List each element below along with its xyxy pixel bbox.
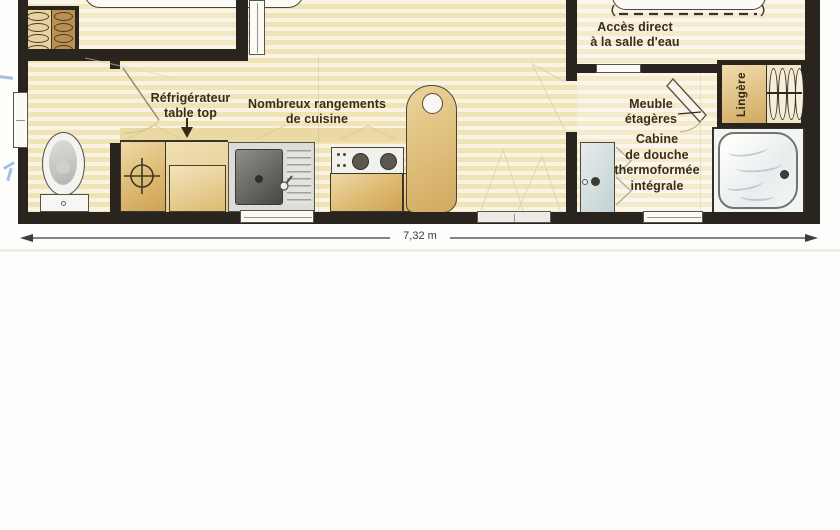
window-frame-line (16, 120, 25, 121)
hob-knob-icon (343, 153, 346, 156)
sink-unit (228, 142, 315, 212)
hob-knob-icon (343, 164, 346, 167)
washbasin-faucet-icon (582, 179, 588, 185)
burner-icon (352, 153, 369, 170)
shower-cabin-label-line1: Cabine (594, 132, 720, 148)
linen-closet-label: Lingère (720, 66, 764, 122)
shelf-unit-label: Meuble étagères (601, 97, 701, 127)
sliding-door-bathroom-access (596, 64, 641, 73)
shower-drain (780, 170, 789, 179)
toilet-bowl (42, 132, 85, 196)
wardrobe-shelf-column-right (51, 10, 75, 49)
hanging-clothes-icon (795, 68, 804, 120)
linen-stack-icon (54, 23, 73, 32)
refrigerator-label-line1: Réfrigérateur (118, 91, 263, 106)
door-panel-line (257, 3, 258, 53)
entrance-door (477, 211, 551, 223)
cabinet-under-hob (330, 173, 403, 212)
peninsula-counter (406, 85, 457, 213)
sink-basin (235, 149, 283, 205)
wall-bathroom-left-lower (566, 132, 577, 212)
shower-cabin-label-line4: intégrale (594, 179, 720, 195)
burner-icon (380, 153, 397, 170)
shower-cabin-label: Cabine de douche thermoformée intégrale (594, 132, 720, 194)
linen-closet-rail (767, 92, 802, 94)
peninsula-circle (422, 93, 443, 114)
linen-stack-icon (27, 23, 49, 32)
dimension-label: 7,32 m (392, 230, 448, 242)
shower-cabin-label-line3: thermoformée (594, 163, 720, 179)
toilet-drain (56, 160, 70, 174)
toilet-cistern (40, 194, 89, 212)
window-kitchen (240, 210, 314, 223)
window-frame-line (244, 217, 312, 218)
hanging-clothes-icon (778, 68, 787, 120)
bed-2 (612, 0, 766, 10)
kitchen-storage-label-line1: Nombreux rangements (246, 97, 388, 112)
refrigerator-label-line2: table top (118, 106, 263, 121)
wall-right (805, 0, 820, 224)
drainboard (287, 150, 311, 204)
bathroom-access-label: Accès direct à la salle d'eau (563, 20, 707, 50)
pen-mark (6, 168, 12, 181)
shelf-unit-label-line1: Meuble (601, 97, 701, 112)
wall-bedroom2-bathroom-right (641, 64, 719, 73)
hob-knob-icon (337, 153, 340, 156)
water-wave-icon (727, 141, 768, 158)
fridge-box (169, 165, 226, 212)
shower-tray (718, 132, 798, 209)
gas-cabinet (120, 140, 166, 212)
shower-cabin-label-line2: de douche (594, 148, 720, 164)
linen-stack-icon (54, 12, 73, 21)
wall-bedroom2-bathroom-left (577, 64, 597, 73)
water-wave-icon (740, 191, 774, 201)
toilet-button (61, 201, 66, 206)
door-panel-line (514, 214, 515, 222)
floorplan-page: Réfrigérateur table top Nombreux rangeme… (0, 0, 840, 530)
refrigerator-label: Réfrigérateur table top (118, 91, 263, 121)
window-wc (13, 92, 28, 148)
kitchen-storage-label: Nombreux rangements de cuisine (246, 97, 388, 127)
floor-seam (318, 55, 319, 212)
wall-bedroom1-right (236, 0, 248, 53)
dimension-arrow-right (805, 234, 818, 242)
hob (331, 147, 404, 174)
scan-shadow-band (0, 249, 840, 252)
dimension-arrow-left (20, 234, 33, 242)
window-bathroom (643, 211, 703, 223)
hob-knob-icon (337, 164, 340, 167)
pen-mark (0, 75, 13, 80)
bed-1 (84, 0, 304, 8)
linen-stack-icon (27, 12, 49, 21)
wall-wc-right-lower (110, 143, 120, 212)
wall-bedroom1-bottom (22, 49, 248, 61)
kitchen-storage-label-line2: de cuisine (246, 112, 388, 127)
linen-stack-icon (54, 34, 73, 43)
water-wave-icon (736, 158, 783, 174)
bathroom-access-label-line1: Accès direct (563, 20, 707, 35)
wall-wc-right-upper (110, 55, 120, 69)
wardrobe (21, 6, 79, 53)
linen-closet-hanging-section (766, 65, 801, 123)
linen-stack-icon (27, 34, 49, 43)
shelf-unit-label-line2: étagères (601, 112, 701, 127)
wardrobe-shelf-column-left (25, 10, 51, 49)
window-frame-line (647, 217, 701, 218)
sink-drain (255, 175, 263, 183)
hanging-clothes-icon (769, 68, 778, 120)
shower-cabin (712, 127, 805, 216)
door-bedroom1-open (249, 0, 265, 55)
bathroom-access-label-line2: à la salle d'eau (563, 35, 707, 50)
